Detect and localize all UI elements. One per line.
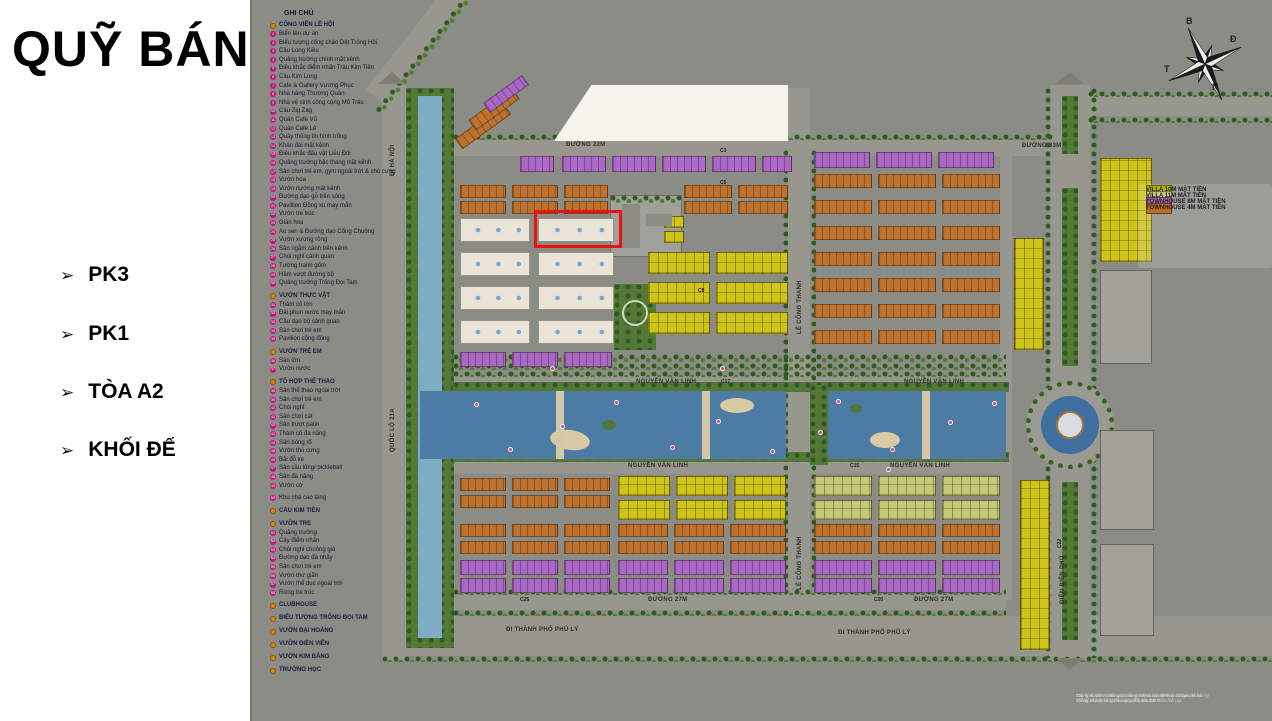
legend-item: 35Pavilion cộng đồng — [270, 335, 406, 344]
page-title: QUỸ BÁN — [12, 20, 250, 78]
legend-item-number: 20 — [270, 195, 276, 201]
tree-line — [453, 371, 1006, 377]
poi-marker — [836, 399, 841, 404]
block-code: C20 — [874, 597, 883, 603]
building-block — [814, 541, 872, 554]
white-zone — [554, 85, 788, 141]
road-label: ĐƯỜNG 33M — [1022, 143, 1061, 149]
legend-item: 17Sân chơi trẻ em, gym ngoài trời & chó … — [270, 168, 406, 177]
legend-item: 55Sân chơi trẻ em — [270, 563, 406, 572]
legend-item: 19Vườn nướng mặt kênh — [270, 185, 406, 194]
building-block — [512, 495, 558, 508]
legend-item-number: 42 — [270, 423, 276, 429]
building-block — [878, 578, 936, 593]
building-block — [730, 578, 786, 593]
legend-item-number: 32 — [270, 311, 276, 317]
legend-item: 42Sân trượt patin — [270, 421, 406, 430]
legend-item-number: 39 — [270, 397, 276, 403]
building-block — [814, 330, 872, 344]
building-block — [460, 218, 530, 242]
legend-item-number: 25 — [270, 238, 276, 244]
legend-section-icon — [270, 349, 276, 355]
legend-section-header: VƯỜN TRẺ EM — [270, 348, 406, 357]
legend-item: 10Cầu Zig Zag — [270, 107, 406, 116]
building-block — [942, 174, 1000, 188]
legend-item-number: 31 — [270, 302, 276, 308]
building-block — [878, 174, 936, 188]
legend-item-number: 47 — [270, 466, 276, 472]
legend-item: 8Nhà hàng Thương Quân — [270, 90, 406, 99]
legend-item-number: 54 — [270, 556, 276, 562]
legend-item-number: 30 — [270, 281, 276, 287]
legend-title: GHI CHÚ — [284, 10, 406, 17]
building-block — [730, 541, 786, 554]
legend-section-icon — [270, 603, 276, 609]
legend-section-icon — [270, 379, 276, 385]
legend-item: 24Ao sen & Đường dạo Cổng Chuông — [270, 228, 406, 237]
building-block — [942, 500, 1000, 520]
building-block — [460, 478, 506, 491]
building-block — [712, 156, 756, 172]
compass-south-label: N — [1212, 82, 1219, 92]
poi-marker — [560, 424, 565, 429]
legend-item-number: 7 — [270, 83, 276, 89]
building-block — [674, 560, 724, 575]
river — [418, 96, 442, 638]
building-block — [762, 156, 792, 172]
legend-item-number: 40 — [270, 405, 276, 411]
building-block — [878, 252, 936, 266]
legend-item-number: 58 — [270, 590, 276, 596]
building-block — [460, 352, 506, 367]
building-block — [676, 476, 728, 496]
fountain — [1056, 411, 1084, 439]
legend-item: 6Cầu Kim Long — [270, 73, 406, 82]
road-label: NGUYỄN VĂN LINH — [636, 379, 696, 385]
poi-marker — [770, 449, 775, 454]
road-label: NGUYỄN VĂN LINH — [628, 463, 688, 469]
legend-item: 52Cây điểm nhấn — [270, 537, 406, 546]
legend-item-number: 49 — [270, 483, 276, 489]
legend-item: 38Sân thể thao ngoài trời — [270, 387, 406, 396]
block-code: C3 — [720, 148, 726, 154]
legend-item: 50Khu nhà cao tầng — [270, 494, 406, 503]
legend-item: 13Quầy thông tin hình trống — [270, 133, 406, 142]
building-block — [716, 312, 788, 334]
building-block — [564, 495, 610, 508]
legend-section-header: VƯỜN TRE — [270, 520, 406, 529]
legend-item-number: 13 — [270, 134, 276, 140]
building-block — [684, 185, 732, 198]
building-block — [942, 226, 1000, 240]
legend-item-number: 8 — [270, 91, 276, 97]
road-label: LÊ CÔNG THANH — [797, 280, 803, 334]
legend-item: 51Quảng trường — [270, 529, 406, 538]
gate-monument — [1056, 658, 1084, 670]
legend-item: 36Sân lớn — [270, 357, 406, 366]
legend-section-icon — [270, 642, 276, 648]
legend-item-number: 44 — [270, 440, 276, 446]
legend-item: 37Vườn nước — [270, 365, 406, 374]
legend-item: 28Tường tranh gốm — [270, 262, 406, 271]
building-block — [512, 560, 558, 575]
legend-item-number: 19 — [270, 186, 276, 192]
road-label: ĐƯỜNG 27M — [914, 597, 953, 603]
legend-item: 5Điêu khắc điểm nhấn Trâu Kim Tiền — [270, 64, 406, 73]
building-block — [618, 578, 668, 593]
median-strip — [1062, 188, 1078, 366]
building-block — [618, 500, 670, 520]
legend-item: 22Vườn tre trúc — [270, 210, 406, 219]
legend-item: 34Sân chơi trẻ em — [270, 327, 406, 336]
legend-section-header: CẦU KIM TIỀN — [270, 507, 406, 516]
legend-item: 43Thảm cỏ đa năng — [270, 430, 406, 439]
compass-star-icon — [1150, 6, 1260, 116]
building-block — [814, 226, 872, 240]
building-block — [878, 524, 936, 537]
legend-item-number: 12 — [270, 126, 276, 132]
legend-item-number: 56 — [270, 573, 276, 579]
block-code: C17 — [721, 379, 730, 385]
legend-item: 25Vườn xương rồng — [270, 236, 406, 245]
disclaimer-line-2: Thông số chính thức của mỗi căn được xác… — [1076, 694, 1213, 704]
legend-item-number: 48 — [270, 474, 276, 480]
legend-item: 9Nhà vệ sinh công cộng Mõ Trâu — [270, 99, 406, 108]
building-block — [618, 476, 670, 496]
legend-item: 30Quảng trường Trống Đọi Tam — [270, 279, 406, 288]
building-block — [460, 252, 530, 276]
legend-item: 7Cafe & Gallery Vương Phục — [270, 82, 406, 91]
legend-item: 40Chòi nghỉ — [270, 404, 406, 413]
legend-color-label: TOWNHOUSE 4M MẶT TIỀN — [1146, 205, 1226, 211]
building-block — [1100, 270, 1152, 364]
legend-item: 48Sân đa năng — [270, 473, 406, 482]
legend-section-header: CLUBHOUSE — [270, 601, 406, 610]
block-code: C5 — [720, 180, 726, 186]
legend-section-header: TRƯỜNG HỌC — [270, 666, 406, 675]
sale-item-khoi-de: ➢ KHỐI ĐẾ — [60, 438, 176, 462]
poi-marker — [716, 419, 721, 424]
legend-section-icon — [270, 616, 276, 622]
road-label: NGUYỄN VĂN LINH — [890, 463, 950, 469]
legend-item: 20Đường dạo gỗ trên sông — [270, 193, 406, 202]
legend-section-icon — [270, 293, 276, 299]
block-code: C22 — [1057, 539, 1063, 548]
legend-item-number: 34 — [270, 328, 276, 334]
poi-marker — [818, 430, 823, 435]
building-block — [942, 252, 1000, 266]
building-block — [814, 252, 872, 266]
legend-item-number: 22 — [270, 212, 276, 218]
legend-item-number: 27 — [270, 255, 276, 261]
legend-item-number: 45 — [270, 448, 276, 454]
canal-bridge — [702, 391, 710, 459]
median-strip — [1062, 96, 1078, 154]
legend-item-number: 53 — [270, 547, 276, 553]
building-block — [564, 578, 610, 593]
canal-junction — [420, 391, 466, 459]
building-block — [942, 541, 1000, 554]
legend-item-number: 52 — [270, 539, 276, 545]
building-block — [814, 500, 872, 520]
road-internal-east — [1000, 140, 1012, 600]
legend-item-number: 36 — [270, 358, 276, 364]
legend-section-header: VƯỜN ĐẠI HOÀNG — [270, 627, 406, 636]
building-block — [938, 152, 994, 168]
legend-item: 1Biển tên dự án — [270, 30, 406, 39]
building-block — [662, 156, 706, 172]
kim-tien-bridge-park — [810, 385, 828, 465]
building-block — [814, 278, 872, 292]
building-block — [564, 560, 610, 575]
legend-item: 32Đài phun nước may mắn — [270, 309, 406, 318]
legend-item: 15Điêu khắc đấu vật Liễu Đôi — [270, 150, 406, 159]
legend-item: 45Vườn thú cưng — [270, 447, 406, 456]
building-block — [814, 560, 872, 575]
poi-marker — [550, 366, 555, 371]
building-block — [564, 524, 610, 537]
legend-item-number: 16 — [270, 160, 276, 166]
poi-marker — [474, 402, 479, 407]
highlight-rectangle — [534, 210, 622, 248]
building-block — [684, 201, 732, 214]
school-wing — [646, 214, 672, 226]
poi-marker — [720, 366, 725, 371]
legend-item-number: 10 — [270, 109, 276, 115]
legend-item: 58Rừng tre trúc — [270, 589, 406, 598]
legend-item: 53Chòi nghỉ chuông gió — [270, 546, 406, 555]
legend-item: 56Vườn thư giãn — [270, 572, 406, 581]
legend-item-number: 41 — [270, 414, 276, 420]
legend-item: 27Chòi nghỉ cảnh quan — [270, 253, 406, 262]
legend-section-icon — [270, 668, 276, 674]
canal-beach — [720, 398, 754, 413]
building-block — [878, 304, 936, 318]
legend-item: 44Sân bóng rổ — [270, 439, 406, 448]
building-block — [512, 541, 558, 554]
legend-item-number: 29 — [270, 272, 276, 278]
legend-item-number: 57 — [270, 582, 276, 588]
sale-item-pk1: ➢ PK1 — [60, 322, 129, 346]
building-block — [612, 156, 656, 172]
tree-line — [610, 195, 682, 203]
canal-east — [828, 391, 1006, 459]
legend-item: 16Quảng trường bậc thang mặt kênh — [270, 159, 406, 168]
building-block — [738, 185, 788, 198]
tree-line — [453, 610, 1006, 616]
building-block — [460, 541, 506, 554]
legend-section-icon — [270, 508, 276, 514]
compass-west-label: T — [1164, 64, 1170, 74]
legend-item-number: 51 — [270, 530, 276, 536]
legend-item: 31Thảm cỏ lớn — [270, 301, 406, 310]
poi-marker — [670, 445, 675, 450]
legend-item: 23Giàn hoa — [270, 219, 406, 228]
legend-section-icon — [270, 655, 276, 661]
building-block — [562, 156, 606, 172]
building-block — [814, 524, 872, 537]
building-block — [878, 560, 936, 575]
building-block — [538, 286, 614, 310]
canal-beach — [870, 432, 900, 448]
building-block — [460, 578, 506, 593]
map-legend: GHI CHÚ CÔNG VIÊN LỄ HỘI1Biển tên dự án2… — [270, 10, 406, 675]
canal-islet — [602, 420, 616, 430]
building-block — [674, 541, 724, 554]
sale-item-pk3: ➢ PK3 — [60, 263, 129, 287]
building-block — [1014, 238, 1044, 350]
building-block — [942, 304, 1000, 318]
legend-item-number: 55 — [270, 564, 276, 570]
building-block — [814, 174, 872, 188]
legend-item-number: 24 — [270, 229, 276, 235]
tree-line — [1088, 117, 1272, 123]
compass-east-label: Đ — [1230, 34, 1237, 44]
legend-item-number: 18 — [270, 177, 276, 183]
legend-item-number: 4 — [270, 57, 276, 63]
gate-monument — [1056, 72, 1084, 84]
arrow-bullet-icon: ➢ — [60, 267, 74, 284]
road-label: LÊ CÔNG THANH — [797, 536, 803, 590]
road-label: NGUYỄN VĂN LINH — [904, 379, 964, 385]
legend-item: 47Sân cầu lông/ pickleball — [270, 464, 406, 473]
building-block — [878, 541, 936, 554]
building-block — [730, 524, 786, 537]
building-block — [512, 185, 558, 198]
building-block — [814, 152, 870, 168]
legend-item: 11Quán Cafe Vũ — [270, 116, 406, 125]
building-block — [876, 152, 932, 168]
legend-body: CÔNG VIÊN LỄ HỘI1Biển tên dự án2Biểu tượ… — [270, 21, 406, 675]
building-block — [460, 524, 506, 537]
legend-item: 39Sân chơi trẻ em — [270, 396, 406, 405]
legend-item-number: 14 — [270, 143, 276, 149]
sales-panel: QUỸ BÁN ➢ PK3 ➢ PK1 ➢ TÒA A2 ➢ KHỐI ĐẾ — [0, 0, 252, 721]
building-block — [734, 500, 786, 520]
legend-item: 21Pavillion Đồng xu may mắn — [270, 202, 406, 211]
building-block — [618, 524, 668, 537]
building-block — [942, 524, 1000, 537]
legend-item: 4Quảng trường chính mặt kênh — [270, 56, 406, 65]
garden-path-circle — [622, 300, 648, 326]
legend-item: 12Quán Cafe Lê — [270, 125, 406, 134]
building-block — [460, 320, 530, 344]
building-block — [460, 201, 506, 214]
building-block — [538, 252, 614, 276]
legend-item: 29Hầm vượt đường bộ — [270, 271, 406, 280]
legend-item-number: 50 — [270, 495, 276, 501]
building-block — [942, 200, 1000, 214]
road-label: ĐƯỜNG 22M — [566, 142, 605, 148]
building-block — [814, 476, 872, 496]
legend-item-number: 37 — [270, 367, 276, 373]
legend-item: 2Biểu tượng cổng chào Dệt Trống Hội — [270, 39, 406, 48]
tree-line — [382, 656, 1272, 662]
legend-item-number: 26 — [270, 246, 276, 252]
legend-item: 26Sân ngắm cảnh trên kênh — [270, 245, 406, 254]
legend-section-header: VƯỜN THỰC VẬT — [270, 292, 406, 301]
legend-item-number: 38 — [270, 388, 276, 394]
building-block — [512, 524, 558, 537]
legend-item-number: 35 — [270, 336, 276, 342]
legend-section-header: BIỂU TƯỢNG TRỐNG ĐỌI TAM — [270, 614, 406, 623]
building-block — [564, 478, 610, 491]
poi-marker — [890, 447, 895, 452]
building-block — [460, 185, 506, 198]
building-block — [512, 478, 558, 491]
building-block — [564, 352, 612, 367]
arrow-bullet-icon: ➢ — [60, 326, 74, 343]
building-block — [520, 156, 554, 172]
building-block — [878, 200, 936, 214]
legend-item: 57Vườn thể dục ngoài trời — [270, 580, 406, 589]
legend-item-number: 15 — [270, 152, 276, 158]
unit-type-legend: VILLA 10M MẶT TIỀNVILLA 11M MẶT TIỀNTOWN… — [1138, 184, 1272, 268]
legend-item-number: 28 — [270, 263, 276, 269]
compass-rose: B Đ T N — [1150, 6, 1260, 116]
legend-item-number: 9 — [270, 100, 276, 106]
building-block — [814, 578, 872, 593]
building-block — [942, 578, 1000, 593]
legend-item-number: 3 — [270, 48, 276, 54]
masterplan-map: GHI CHÚ CÔNG VIÊN LỄ HỘI1Biển tên dự án2… — [250, 0, 1272, 721]
building-block — [618, 541, 668, 554]
legend-item: 54Đường dạo đá nhảy — [270, 554, 406, 563]
legend-section-icon — [270, 23, 276, 29]
building-block — [878, 330, 936, 344]
building-block — [538, 320, 614, 344]
legend-item-number: 6 — [270, 74, 276, 80]
tree-line — [1091, 88, 1097, 658]
building-block — [942, 330, 1000, 344]
building-block — [564, 185, 608, 198]
building-block — [878, 226, 936, 240]
poi-marker — [614, 400, 619, 405]
poi-marker — [992, 401, 997, 406]
building-block — [618, 560, 668, 575]
building-block — [814, 304, 872, 318]
poi-marker — [948, 420, 953, 425]
building-block — [512, 352, 558, 367]
legend-section-header: TỔ HỢP THỂ THAO — [270, 378, 406, 387]
canal-bridge — [922, 391, 930, 459]
legend-section-header: VƯỜN KIM BẢNG — [270, 653, 406, 662]
block-code: C25 — [520, 597, 529, 603]
road-label: ĐI THÀNH PHỐ PHỦ LÝ — [506, 627, 579, 633]
arrow-bullet-icon: ➢ — [60, 442, 74, 459]
compass-north-label: B — [1186, 16, 1193, 26]
legend-item-number: 33 — [270, 319, 276, 325]
legend-item: 41Sân chơi cát — [270, 413, 406, 422]
slide: QUỸ BÁN ➢ PK3 ➢ PK1 ➢ TÒA A2 ➢ KHỐI ĐẾ — [0, 0, 1272, 721]
legend-item-number: 2 — [270, 40, 276, 46]
legend-item: 49Vườn cờ — [270, 482, 406, 491]
school-wing — [622, 204, 640, 248]
building-block — [1020, 480, 1050, 650]
building-block — [942, 476, 1000, 496]
legend-item: 14Khán đài mặt kênh — [270, 142, 406, 151]
legend-item-number: 21 — [270, 203, 276, 209]
building-block — [730, 560, 786, 575]
legend-item-number: 1 — [270, 31, 276, 37]
legend-item-number: 5 — [270, 66, 276, 72]
block-code: C15 — [850, 463, 859, 469]
building-block — [512, 578, 558, 593]
road-label: ĐƯỜNG 27M — [648, 597, 687, 603]
building-block — [648, 312, 710, 334]
legend-item: 18Vườn hoa — [270, 176, 406, 185]
legend-item: 3Cầu Long Kiều — [270, 47, 406, 56]
